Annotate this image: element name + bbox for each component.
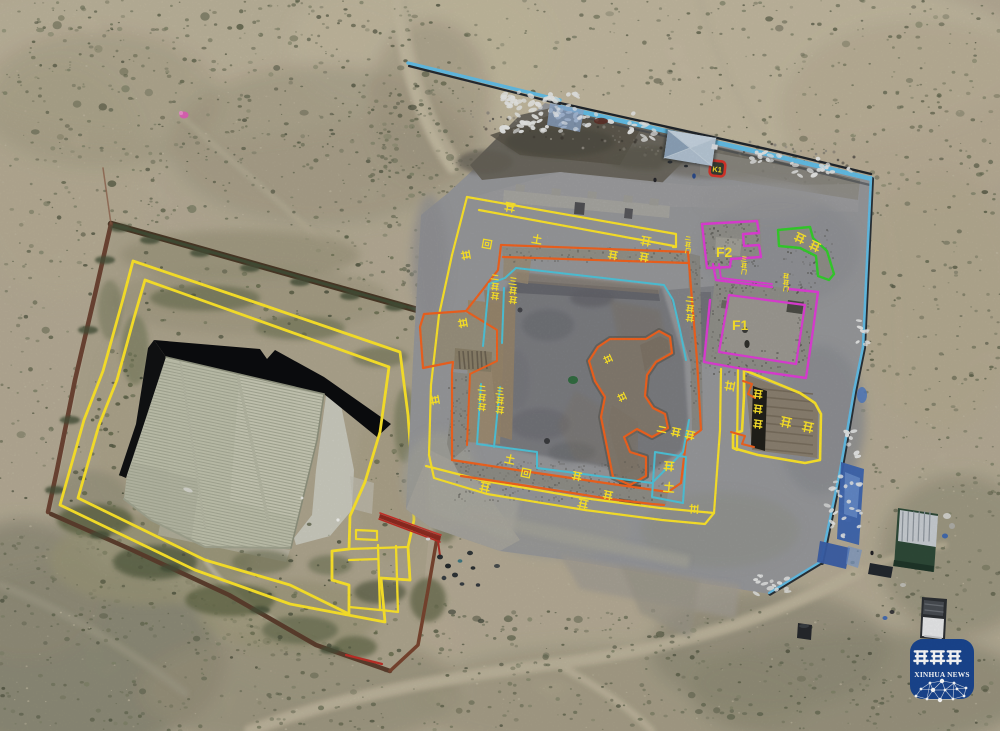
svg-text:F2: F2	[716, 244, 733, 260]
svg-text:XINHUA NEWS: XINHUA NEWS	[914, 670, 969, 679]
svg-text:F1: F1	[732, 317, 749, 333]
